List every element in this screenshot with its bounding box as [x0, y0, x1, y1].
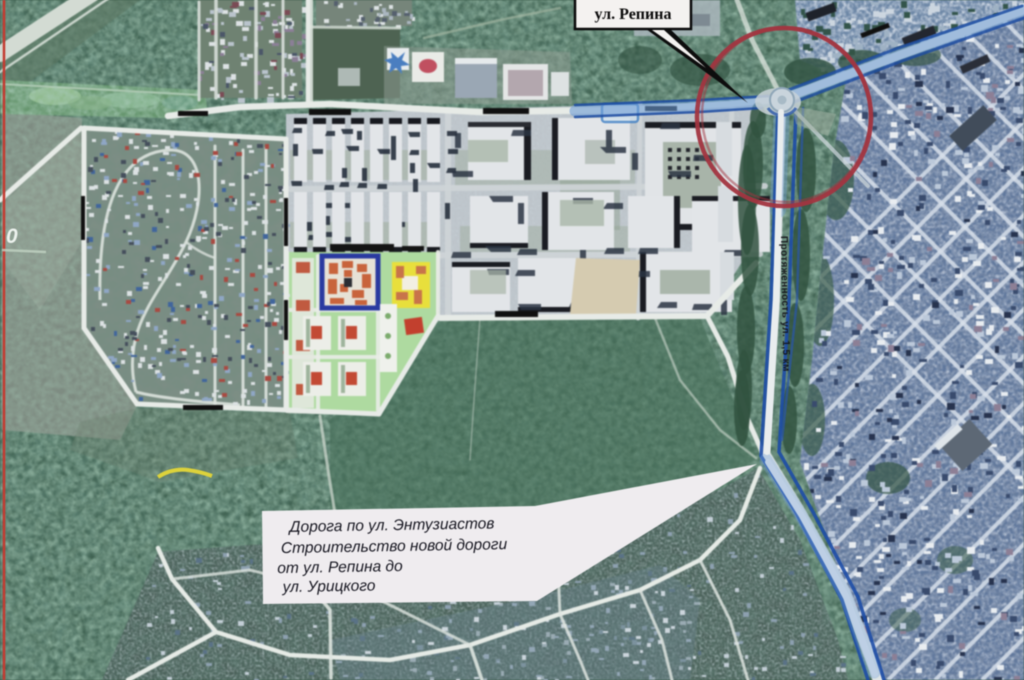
svg-text:ул. Репина: ул. Репина — [595, 6, 672, 23]
svg-text:Дорога по ул. Энтузиастов: Дорога по ул. Энтузиастов — [287, 515, 494, 536]
svg-text:0: 0 — [6, 225, 18, 248]
svg-text:ул. Урицкого: ул. Урицкого — [281, 577, 375, 596]
svg-text:от ул. Репина до: от ул. Репина до — [277, 558, 403, 577]
